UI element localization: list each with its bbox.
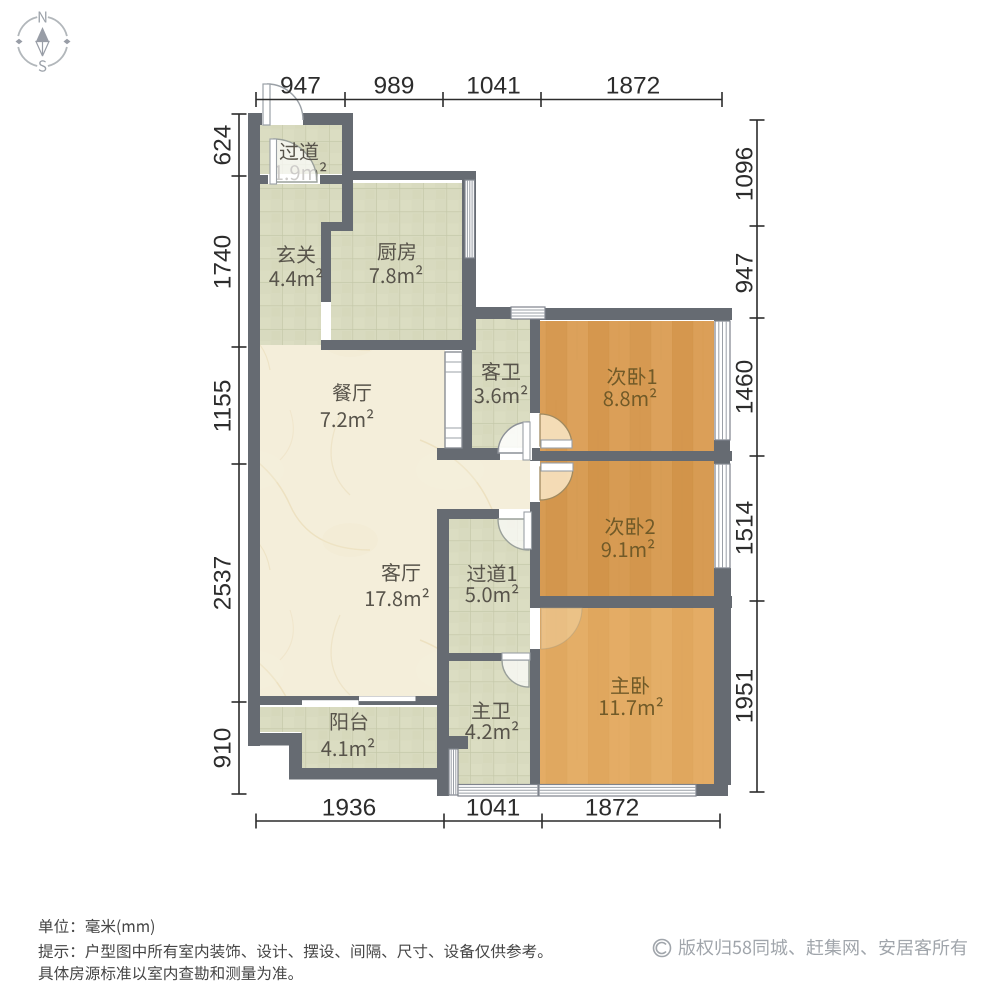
svg-text:1951: 1951 — [732, 669, 759, 724]
svg-text:1460: 1460 — [732, 360, 759, 415]
svg-text:1041: 1041 — [466, 795, 521, 822]
svg-text:947: 947 — [280, 73, 321, 100]
svg-text:1872: 1872 — [606, 73, 661, 100]
svg-text:1936: 1936 — [322, 795, 377, 822]
svg-text:1740: 1740 — [210, 235, 237, 290]
svg-text:910: 910 — [210, 728, 237, 769]
svg-text:1872: 1872 — [585, 795, 640, 822]
svg-text:2537: 2537 — [210, 556, 237, 611]
svg-text:989: 989 — [374, 73, 415, 100]
svg-text:1041: 1041 — [466, 73, 521, 100]
svg-text:947: 947 — [732, 253, 759, 294]
svg-text:1155: 1155 — [210, 380, 237, 433]
svg-text:1096: 1096 — [732, 147, 759, 202]
svg-text:624: 624 — [210, 125, 237, 166]
svg-text:1514: 1514 — [732, 501, 759, 556]
